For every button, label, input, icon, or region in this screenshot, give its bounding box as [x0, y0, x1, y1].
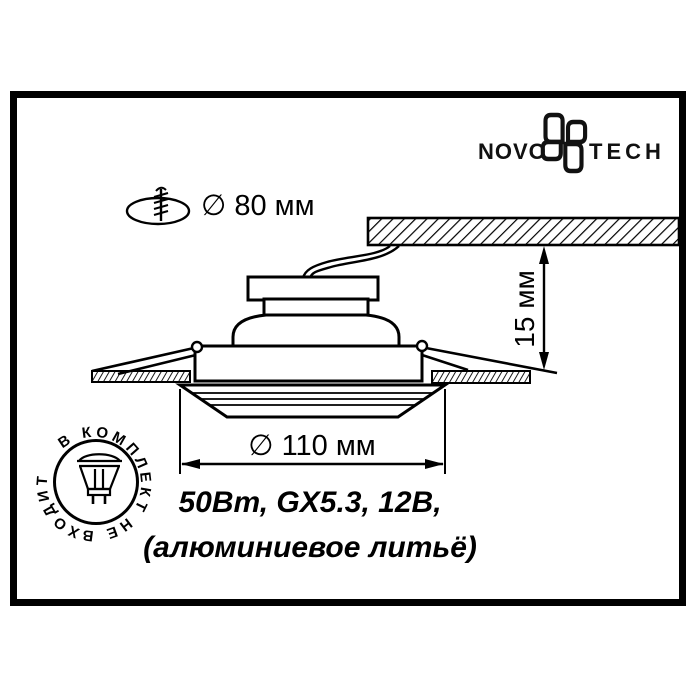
- depth-dimension: 15 мм: [509, 246, 549, 370]
- drill-hole-icon: [127, 188, 189, 224]
- technical-drawing: 15 мм ∅ 110 мм В КОМПЛЕКТ НЕ ВХОД: [0, 0, 700, 700]
- logo-text-tech: TECH: [589, 140, 665, 163]
- cutout-diameter-label: ∅ 80 мм: [201, 190, 315, 223]
- power-wire: [303, 246, 399, 278]
- trim-can-body: [195, 346, 422, 381]
- ceiling-panel-section: [368, 218, 679, 245]
- logo-text-novo: NOVO: [478, 140, 547, 163]
- trim-flange: [180, 385, 445, 417]
- spec-line-wattage: 50Вт, GX5.3, 12В,: [0, 486, 620, 520]
- housing-bell: [233, 315, 399, 347]
- holder-neck: [264, 299, 368, 316]
- diagram-page: 15 мм ∅ 110 мм В КОМПЛЕКТ НЕ ВХОД: [0, 0, 700, 700]
- diameter-dimension-label: ∅ 110 мм: [248, 430, 375, 462]
- lamp-not-included-stamp: В КОМПЛЕКТ НЕ ВХОДИТ: [34, 424, 155, 545]
- novotech-flower-icon: [543, 115, 585, 171]
- depth-dimension-label: 15 мм: [509, 270, 540, 347]
- spec-line-material: (алюминиевое литьё): [0, 531, 620, 565]
- lamp-holder-block: [248, 277, 378, 300]
